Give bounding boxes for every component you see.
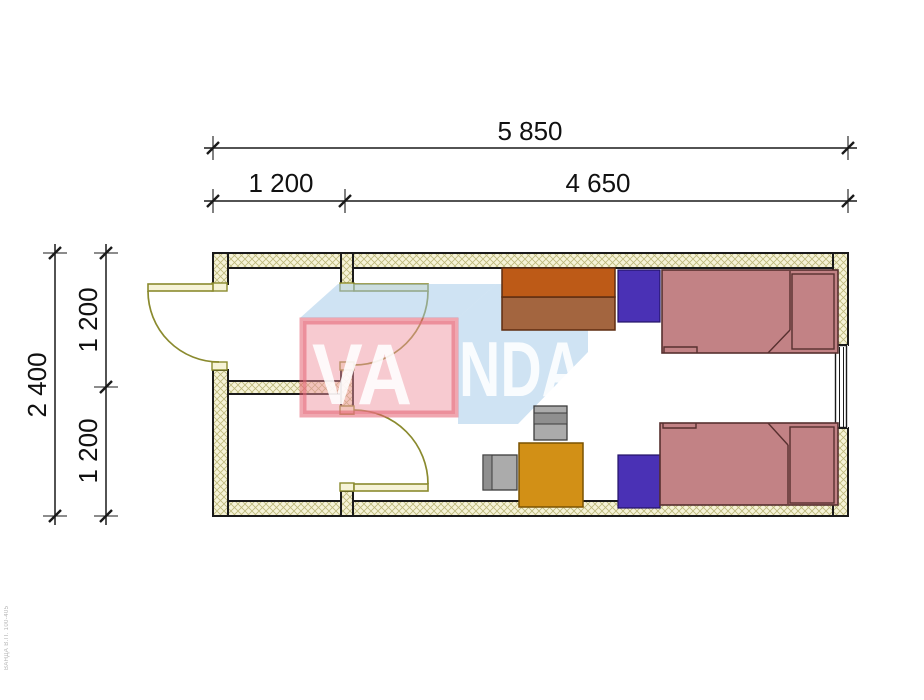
- dimension-top-split: 1 200 4 650: [204, 168, 857, 213]
- watermark-text-back: NDA: [459, 325, 583, 413]
- watermark-text-front: VA: [312, 327, 412, 423]
- window-frame: [836, 346, 847, 428]
- dim-label-total-width: 5 850: [497, 116, 562, 146]
- wall-left-upper: [213, 253, 228, 284]
- table: [519, 443, 583, 507]
- bed-bottom-pillow: [790, 427, 834, 503]
- wall-top: [213, 253, 848, 268]
- chair-left: [483, 455, 517, 490]
- floor-plan-page: 5 850 1 200 4 650 2 400 1 200 1 200: [0, 0, 924, 700]
- dim-label-room2-height: 1 200: [73, 418, 103, 483]
- dim-label-room1-height: 1 200: [73, 287, 103, 352]
- door-frame-post: [212, 283, 227, 291]
- bed-top-pillow: [792, 274, 834, 349]
- wardrobe-body: [502, 297, 615, 330]
- wall-left-lower: [213, 370, 228, 516]
- window-right-wall: [833, 345, 848, 428]
- door-frame-post: [212, 362, 227, 370]
- bed-bottom: [660, 423, 838, 505]
- floor-plan-canvas: 5 850 1 200 4 650 2 400 1 200 1 200: [0, 0, 924, 700]
- cabinet-top: [618, 270, 660, 322]
- entrance-door-swing: [148, 291, 219, 362]
- dimension-side-split: 1 200 1 200: [73, 244, 118, 525]
- dim-label-total-height: 2 400: [22, 352, 52, 417]
- partition-upper: [341, 253, 353, 284]
- footer-signature: ВАНДА В.П. 100-405: [4, 612, 10, 670]
- chair-left-backrest: [483, 455, 492, 490]
- dimension-side-total: 2 400: [22, 244, 67, 525]
- door-frame-post: [340, 483, 354, 491]
- partition-lower: [341, 491, 353, 516]
- chair-top: [534, 406, 567, 440]
- dim-label-room-width: 4 650: [565, 168, 630, 198]
- entrance-door-leaf: [148, 284, 213, 291]
- bed-top: [662, 270, 838, 353]
- room2-door-leaf: [354, 484, 428, 491]
- chair-top-backrest: [534, 413, 567, 424]
- dim-label-vestibule-width: 1 200: [248, 168, 313, 198]
- wardrobe-top: [502, 268, 615, 297]
- dimension-top-total: 5 850: [204, 116, 857, 160]
- cabinet-bottom: [618, 455, 660, 508]
